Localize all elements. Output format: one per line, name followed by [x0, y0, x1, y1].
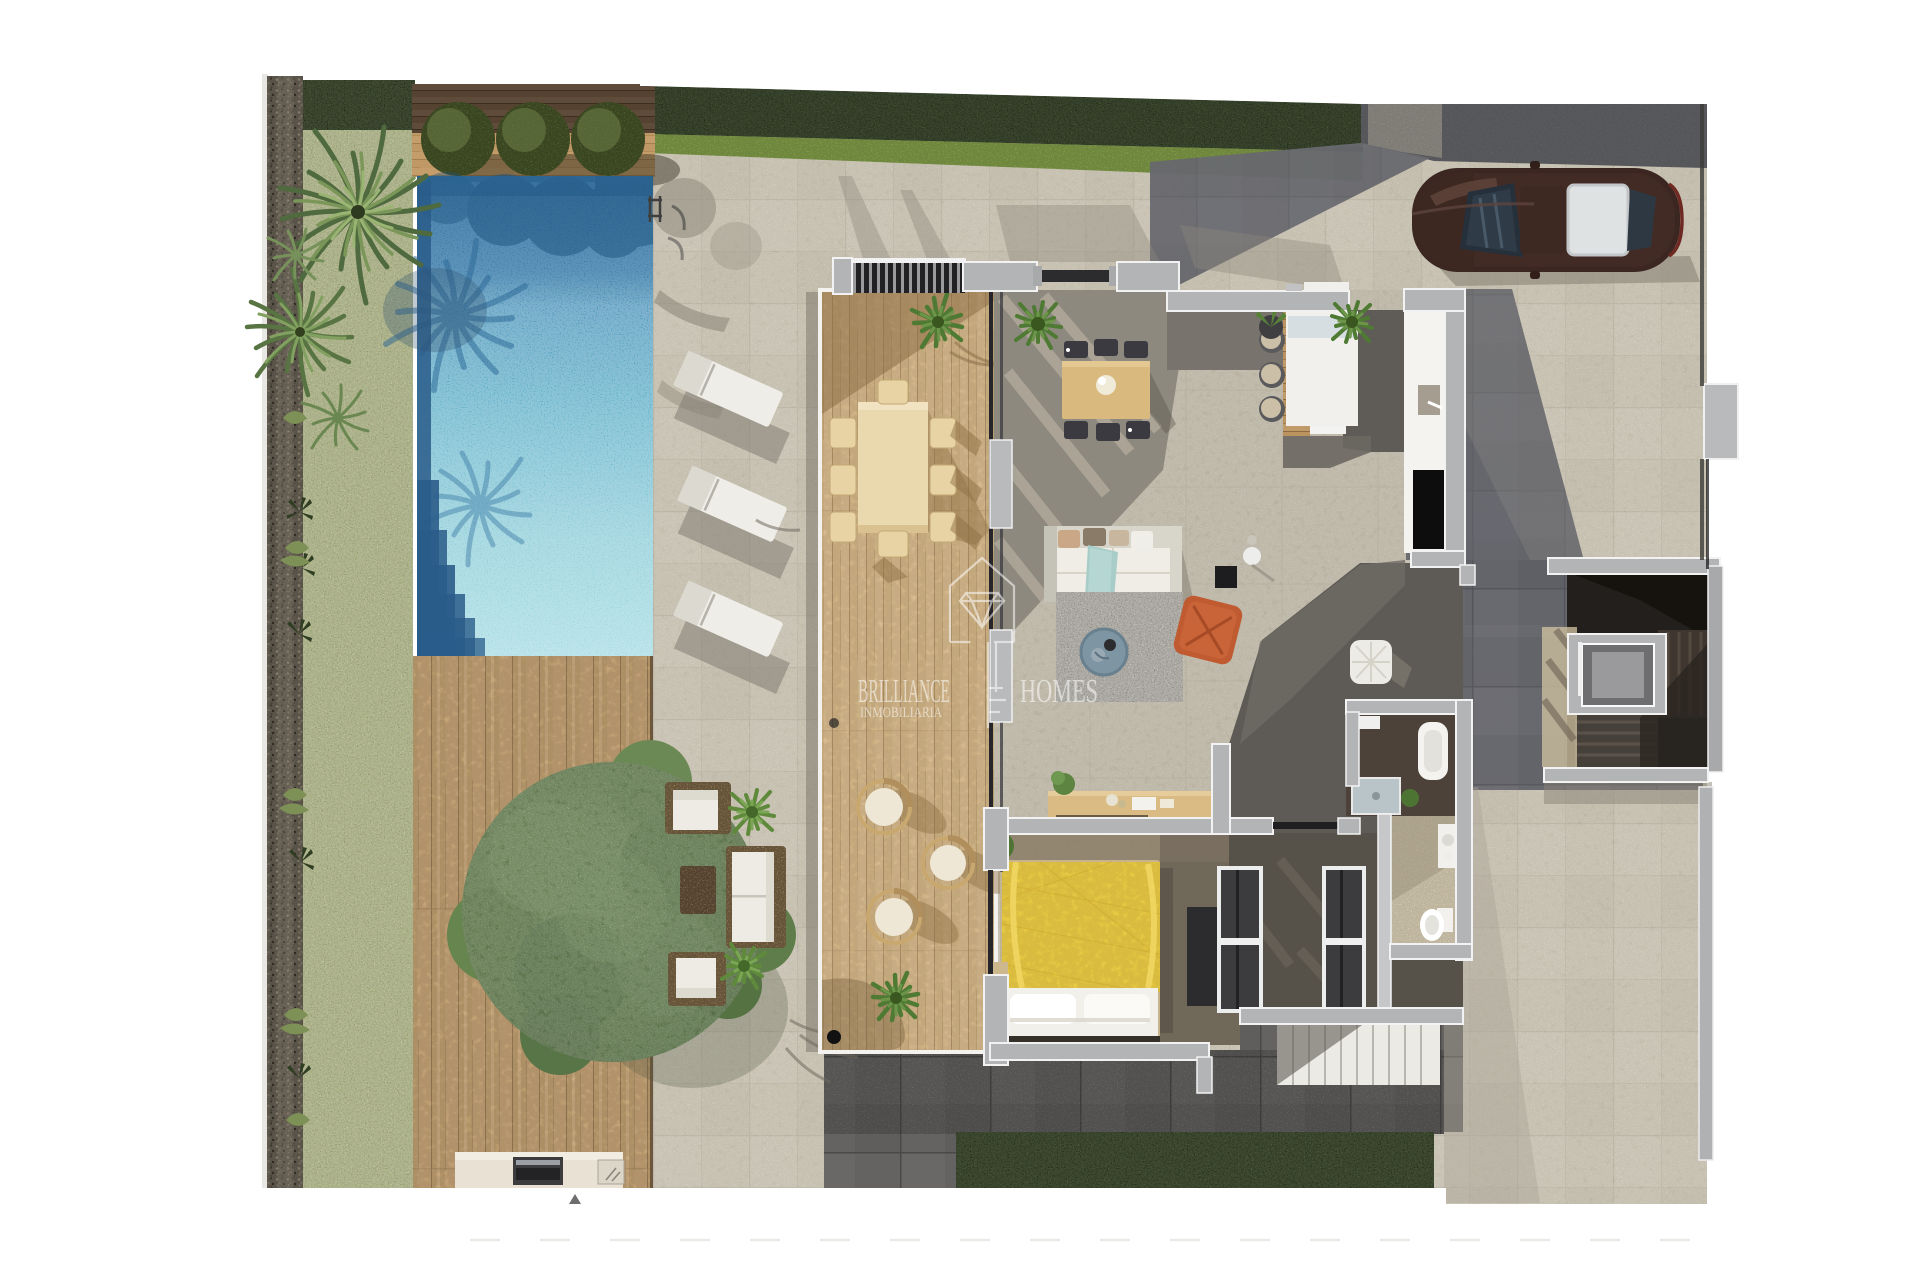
svg-text:INMOBILIARIA: INMOBILIARIA [860, 705, 942, 721]
svg-text:HOMES: HOMES [1020, 673, 1098, 710]
